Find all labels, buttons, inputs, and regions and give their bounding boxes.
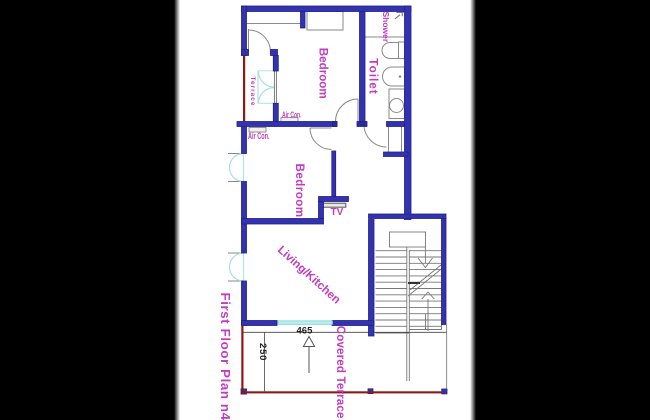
svg-text:TV: TV [331, 207, 344, 218]
svg-text:Covered Terrace: Covered Terrace [334, 326, 347, 419]
svg-text:Air Con.: Air Con. [248, 131, 270, 141]
svg-text:Bedroom: Bedroom [293, 164, 306, 218]
svg-text:Air Con.: Air Con. [282, 111, 302, 120]
svg-text:Toilet: Toilet [366, 58, 380, 95]
svg-text:Terrace: Terrace [249, 77, 256, 107]
svg-text:First Floor Plan n4: First Floor Plan n4 [218, 293, 233, 420]
svg-text:465: 465 [297, 326, 314, 337]
svg-text:250: 250 [257, 343, 268, 361]
svg-text:Shower: Shower [381, 12, 391, 43]
svg-text:Bedroom: Bedroom [317, 48, 330, 99]
